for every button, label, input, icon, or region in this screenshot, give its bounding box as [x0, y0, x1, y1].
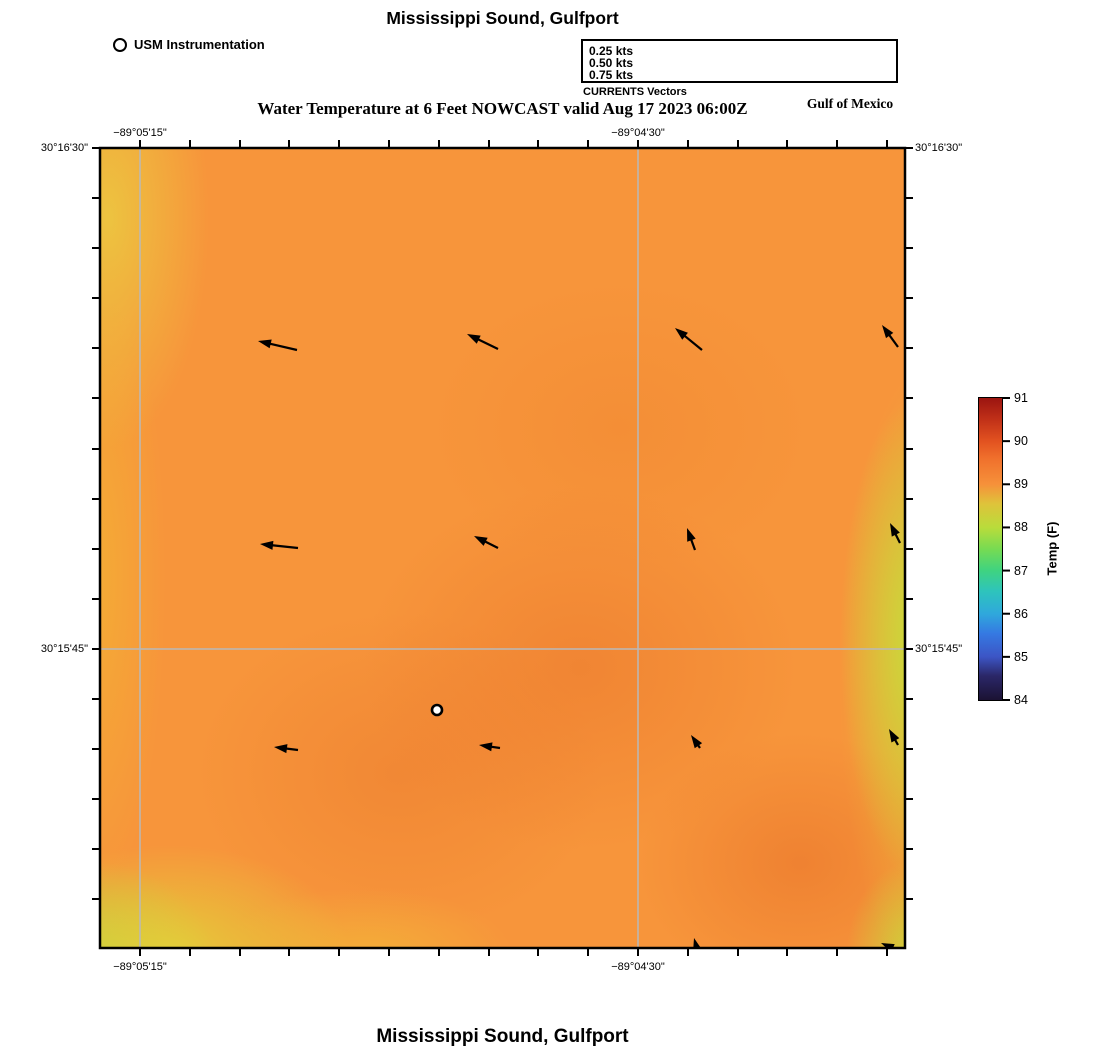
- y-axis-label-left-south: 30°15'45": [0, 643, 88, 655]
- currents-legend-box: 0.25 kts 0.50 kts 0.75 kts: [581, 39, 898, 83]
- colorbar-tick-label: 88: [1014, 520, 1028, 534]
- colorbar-tick-label: 91: [1014, 391, 1028, 405]
- heatmap-surface: [100, 148, 905, 948]
- figure-subtitle: Water Temperature at 6 Feet NOWCAST vali…: [100, 99, 905, 119]
- colorbar-axis-label: Temp (F): [1045, 509, 1060, 589]
- x-axis-label-top-east: −89°04'30": [611, 127, 665, 139]
- colorbar-tick-label: 87: [1014, 564, 1028, 578]
- x-axis-label-top-west: −89°05'15": [113, 127, 167, 139]
- usm-legend-label: USM Instrumentation: [134, 37, 265, 52]
- colorbar-tick-label: 84: [1014, 693, 1028, 707]
- y-axis-label-left-north: 30°16'30": [0, 142, 88, 154]
- current-vector: [891, 947, 906, 954]
- colorbar-tick-label: 89: [1014, 477, 1028, 491]
- current-vector: [697, 949, 700, 960]
- colorbar-tick-label: 85: [1014, 650, 1028, 664]
- y-axis-label-right-north: 30°16'30": [915, 142, 962, 154]
- colorbar: [979, 398, 1002, 700]
- page-title: Mississippi Sound, Gulfport: [100, 8, 905, 29]
- currents-caption: CURRENTS Vectors: [583, 86, 687, 98]
- x-axis-label-bottom-east: −89°04'30": [611, 961, 665, 973]
- y-axis-label-right-south: 30°15'45": [915, 643, 962, 655]
- station-marker-icon: [113, 38, 127, 52]
- currents-legend-label: 0.75 kts: [589, 69, 633, 81]
- figure-root: Mississippi Sound, Gulfport USM Instrume…: [0, 0, 1100, 1050]
- x-axis-label-bottom-west: −89°05'15": [113, 961, 167, 973]
- colorbar-tick-label: 90: [1014, 434, 1028, 448]
- usm-legend: USM Instrumentation: [113, 37, 265, 52]
- footer-title: Mississippi Sound, Gulfport: [100, 1026, 905, 1048]
- colorbar-tick-label: 86: [1014, 607, 1028, 621]
